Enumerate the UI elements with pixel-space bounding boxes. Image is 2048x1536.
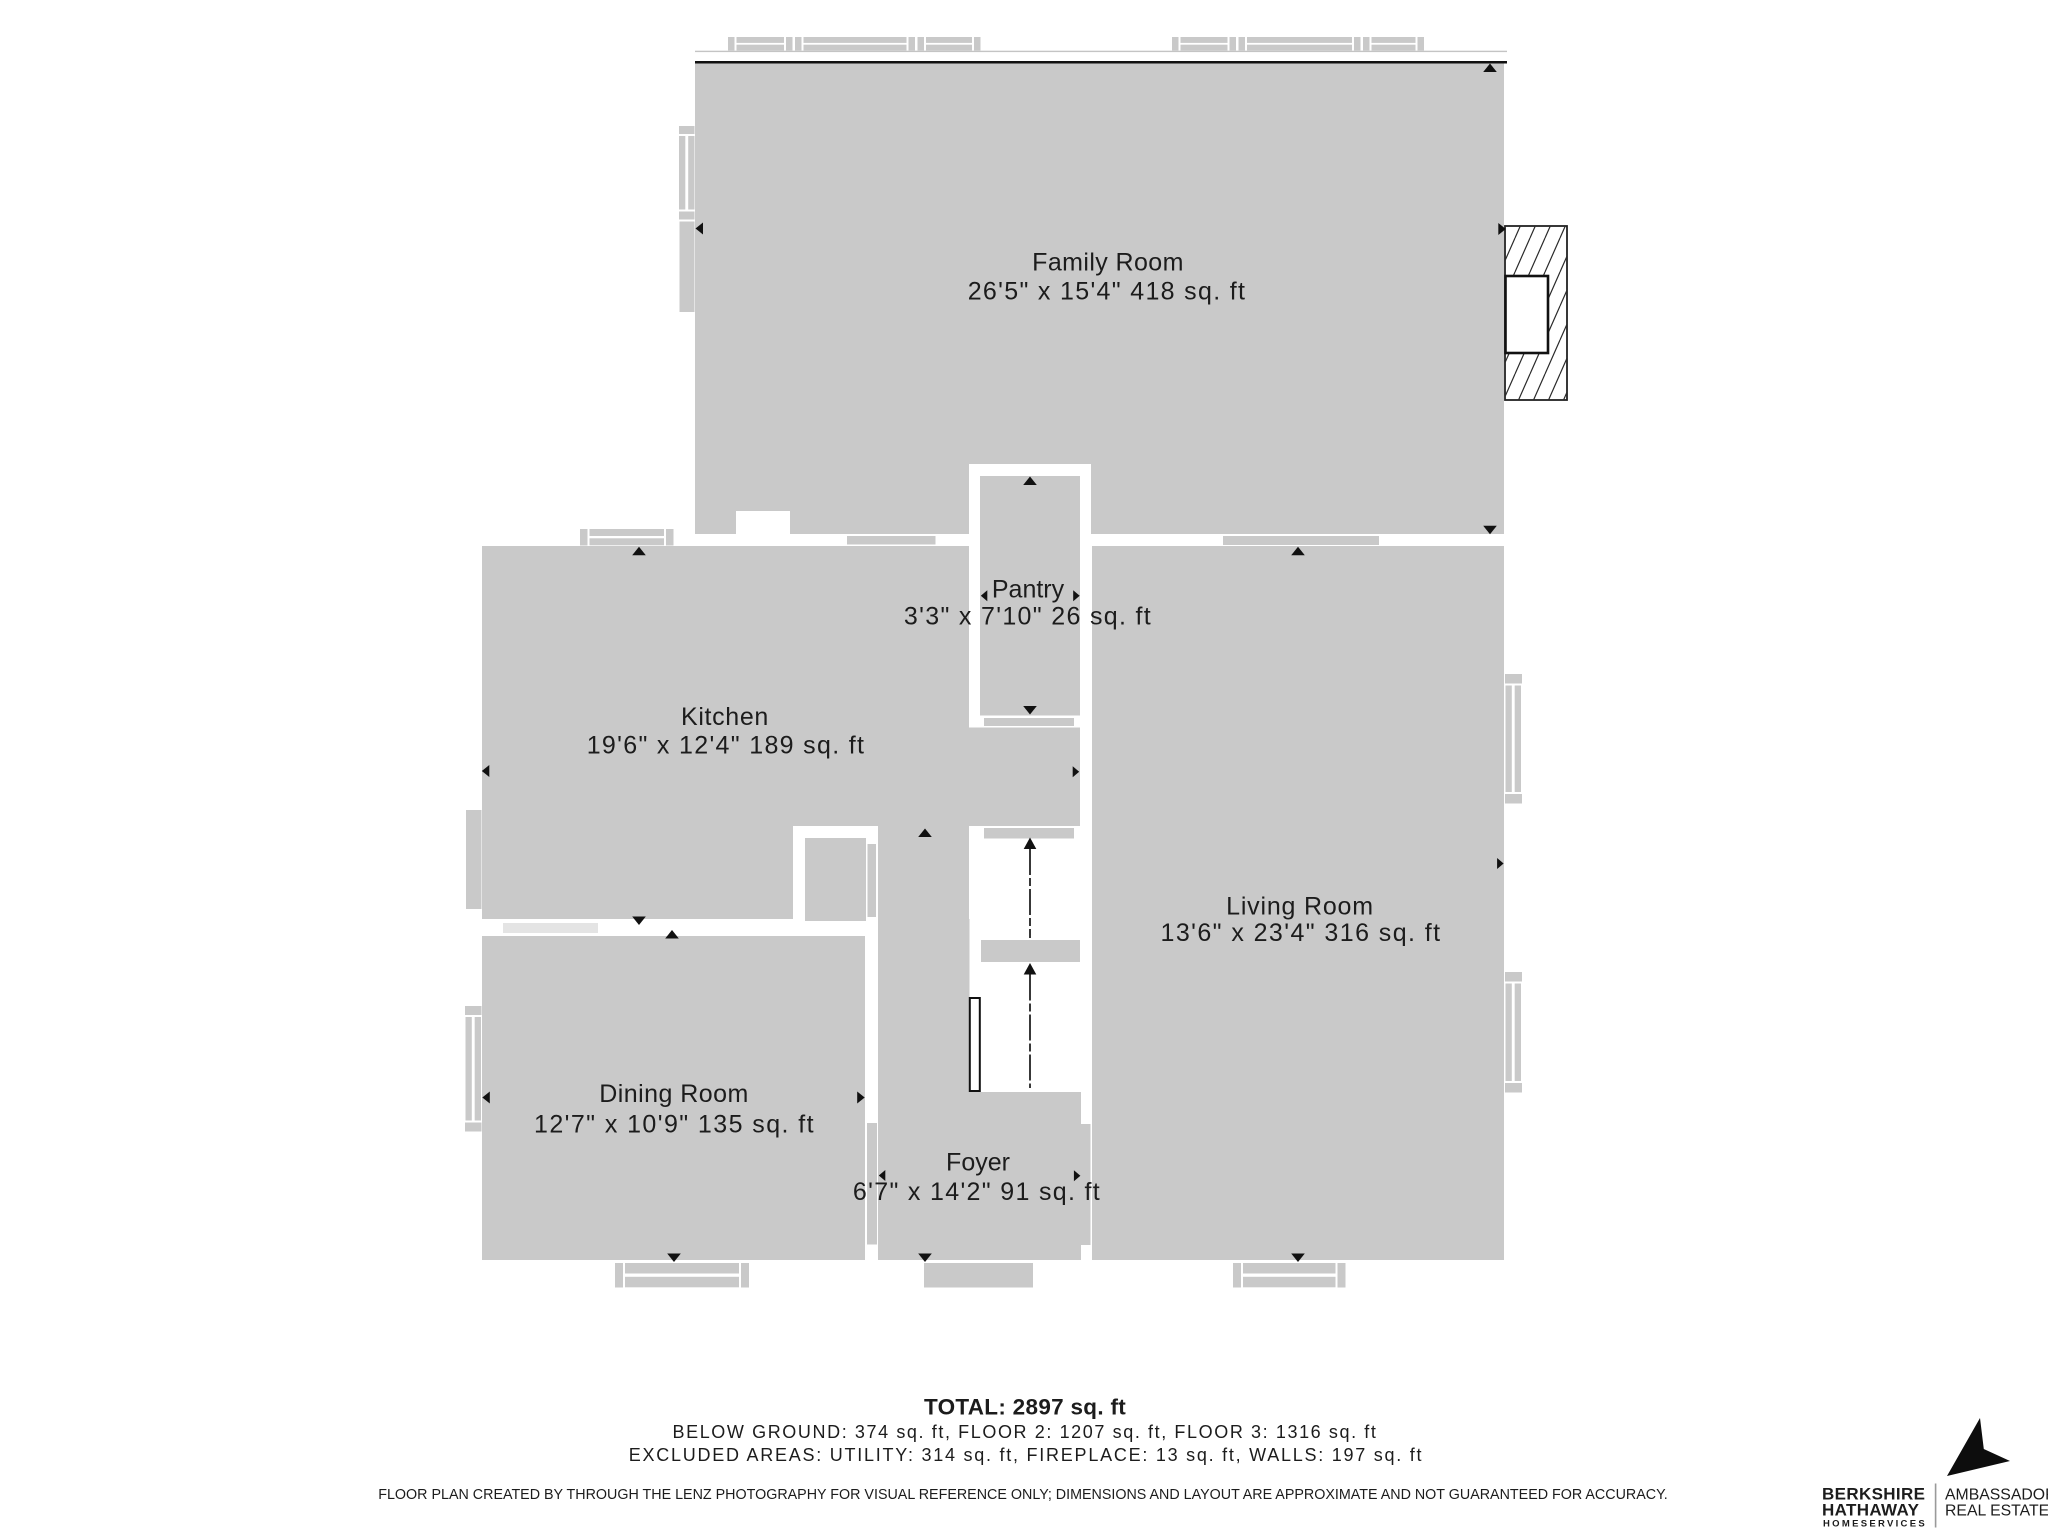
svg-text:26'5" x 15'4" 418 sq. ft: 26'5" x 15'4" 418 sq. ft [968, 278, 1247, 306]
svg-text:Family Room: Family Room [1032, 249, 1184, 277]
svg-text:Pantry: Pantry [992, 576, 1065, 604]
svg-text:HOMESERVICES: HOMESERVICES [1823, 1519, 1927, 1530]
svg-text:12'7" x 10'9" 135 sq. ft: 12'7" x 10'9" 135 sq. ft [534, 1111, 815, 1139]
svg-text:Kitchen: Kitchen [681, 703, 769, 731]
svg-text:Dining Room: Dining Room [599, 1080, 748, 1108]
svg-text:TOTAL: 2897 sq. ft: TOTAL: 2897 sq. ft [924, 1395, 1126, 1420]
svg-text:BELOW GROUND: 374 sq. ft, FLOO: BELOW GROUND: 374 sq. ft, FLOOR 2: 1207 … [672, 1422, 1377, 1442]
svg-text:AMBASSADOR: AMBASSADOR [1945, 1487, 2048, 1504]
svg-text:Foyer: Foyer [946, 1149, 1010, 1177]
svg-text:6'7" x 14'2" 91 sq. ft: 6'7" x 14'2" 91 sq. ft [853, 1178, 1101, 1206]
svg-text:FLOOR PLAN CREATED BY THROUGH: FLOOR PLAN CREATED BY THROUGH THE LENZ P… [378, 1487, 1668, 1503]
svg-text:EXCLUDED AREAS: UTILITY: 314 s: EXCLUDED AREAS: UTILITY: 314 sq. ft, FIR… [629, 1445, 1424, 1465]
svg-text:13'6" x 23'4" 316 sq. ft: 13'6" x 23'4" 316 sq. ft [1161, 919, 1442, 947]
svg-text:Living Room: Living Room [1226, 893, 1374, 921]
svg-text:REAL ESTATE: REAL ESTATE [1945, 1503, 2048, 1520]
svg-text:19'6" x 12'4" 189 sq. ft: 19'6" x 12'4" 189 sq. ft [587, 732, 866, 760]
svg-text:3'3" x 7'10" 26 sq. ft: 3'3" x 7'10" 26 sq. ft [904, 603, 1152, 631]
svg-text:HATHAWAY: HATHAWAY [1822, 1501, 1920, 1520]
